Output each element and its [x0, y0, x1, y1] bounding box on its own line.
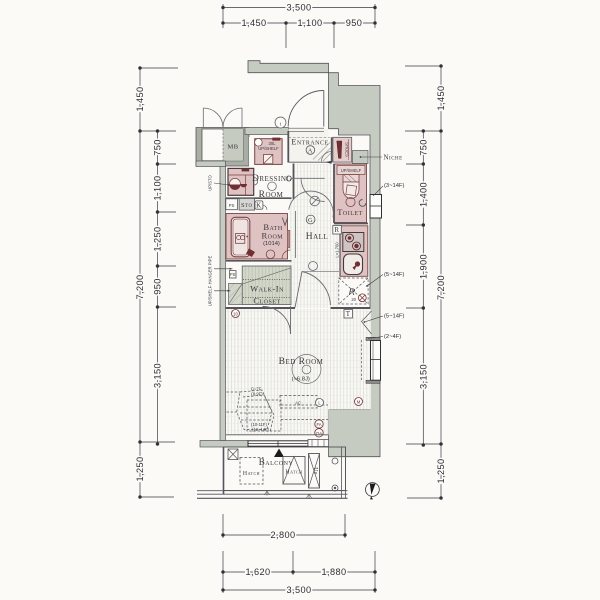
svg-text:(12~14F): (12~14F): [252, 427, 270, 432]
svg-text:FA: FA: [316, 422, 321, 427]
svg-text:10: 10: [233, 312, 238, 317]
svg-text:7,200: 7,200: [135, 275, 145, 300]
svg-text:Up: Up: [312, 467, 318, 475]
svg-text:Room: Room: [259, 190, 284, 200]
svg-text:T: T: [346, 310, 351, 318]
svg-text:(1014): (1014): [263, 241, 280, 247]
svg-text:M: M: [357, 400, 361, 405]
svg-text:PS: PS: [229, 203, 235, 208]
svg-text:K: K: [256, 202, 262, 210]
svg-text:3,500: 3,500: [287, 585, 312, 595]
svg-text:(2~4F): (2~4F): [384, 334, 401, 340]
svg-text:Room: Room: [261, 231, 283, 241]
svg-text:Hatch: Hatch: [285, 470, 302, 476]
svg-text:MB: MB: [227, 144, 238, 151]
svg-text:L=1,700: L=1,700: [335, 242, 340, 258]
svg-text:1,250: 1,250: [135, 457, 145, 482]
svg-text:7,200: 7,200: [436, 275, 446, 300]
svg-text:R: R: [349, 287, 356, 297]
svg-text:1,450: 1,450: [135, 87, 145, 112]
svg-text:(5~14F): (5~14F): [384, 314, 405, 320]
svg-text:UP/SHELF: UP/SHELF: [341, 168, 362, 173]
svg-text:Hall: Hall: [306, 232, 328, 242]
svg-text:Dressing: Dressing: [252, 174, 292, 184]
svg-text:3,150: 3,150: [153, 363, 163, 388]
svg-text:1,250: 1,250: [436, 459, 446, 484]
svg-text:1,100: 1,100: [298, 18, 323, 28]
svg-text:1,900: 1,900: [418, 254, 428, 279]
svg-text:750: 750: [153, 139, 163, 156]
svg-text:1,450: 1,450: [436, 86, 446, 111]
svg-text:Walk-In: Walk-In: [250, 284, 284, 294]
svg-text:1,250: 1,250: [153, 227, 163, 252]
svg-text:Entrance: Entrance: [291, 138, 328, 147]
svg-text:Balcony: Balcony: [259, 457, 294, 467]
svg-text:950: 950: [346, 18, 363, 28]
svg-text:Bed Room: Bed Room: [279, 357, 324, 367]
svg-text:(5~14F): (5~14F): [384, 272, 405, 278]
svg-text:950: 950: [153, 278, 163, 295]
svg-text:1,880: 1,880: [322, 567, 347, 577]
svg-text:(8·9F): (8·9F): [251, 392, 263, 397]
svg-text:G: G: [308, 217, 313, 224]
svg-text:2,800: 2,800: [271, 530, 296, 540]
svg-text:1,620: 1,620: [246, 567, 271, 577]
svg-text:Niche: Niche: [384, 154, 403, 162]
svg-text:750: 750: [418, 139, 428, 156]
svg-text:Closet: Closet: [253, 296, 280, 306]
svg-text:(≈6.8J): (≈6.8J): [292, 377, 310, 383]
svg-text:PS: PS: [230, 272, 236, 277]
svg-text:Sto: Sto: [241, 202, 253, 209]
svg-text:UP/STO: UP/STO: [208, 175, 213, 191]
svg-text:3,150: 3,150: [418, 364, 428, 389]
svg-text:20: 20: [351, 297, 356, 302]
svg-text:1,100: 1,100: [153, 176, 163, 201]
svg-text:3,500: 3,500: [287, 3, 312, 13]
svg-text:1,450: 1,450: [242, 18, 267, 28]
svg-text:Hatch: Hatch: [243, 471, 260, 477]
svg-text:R: R: [334, 226, 339, 234]
svg-text:UP/SHELF: UP/SHELF: [258, 146, 279, 151]
svg-text:Toilet: Toilet: [337, 207, 363, 217]
svg-text:AC: AC: [295, 400, 301, 405]
svg-text:UP/SHELF·HANGER PIPE: UP/SHELF·HANGER PIPE: [208, 256, 213, 307]
svg-text:1,400: 1,400: [418, 182, 428, 207]
svg-text:(3~14F): (3~14F): [384, 183, 405, 189]
svg-text:OA: OA: [316, 431, 322, 436]
svg-text:A: A: [308, 148, 313, 155]
